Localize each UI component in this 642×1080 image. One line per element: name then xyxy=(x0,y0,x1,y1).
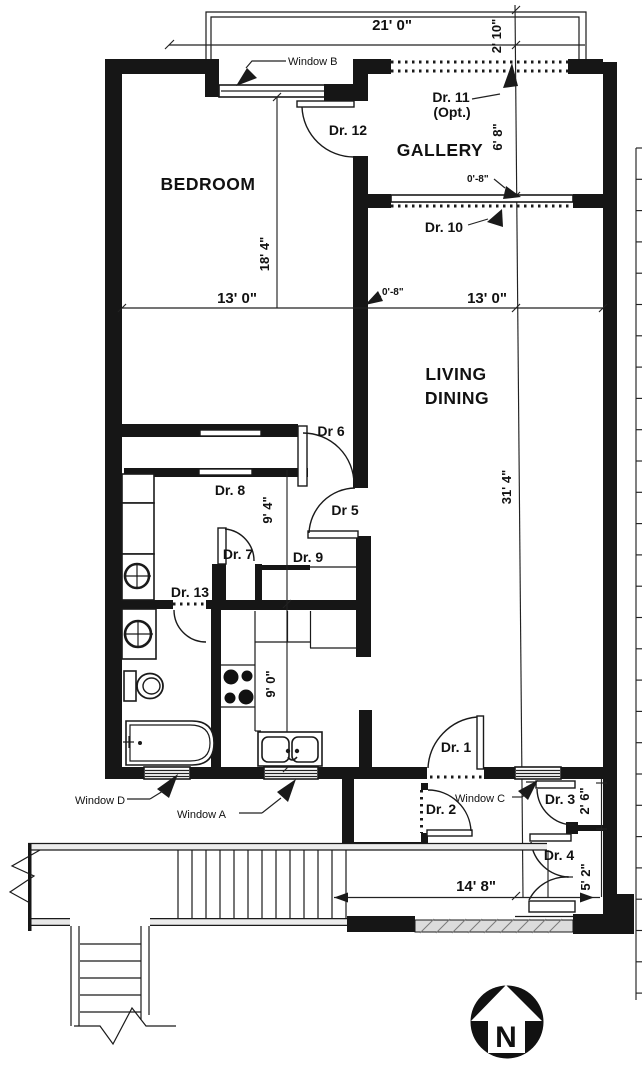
svg-text:Dr. 11: Dr. 11 xyxy=(432,89,470,105)
svg-text:Dr 6: Dr 6 xyxy=(317,423,344,439)
svg-text:Dr. 7: Dr. 7 xyxy=(223,546,254,562)
svg-text:Dr 5: Dr 5 xyxy=(331,502,358,518)
svg-text:(Opt.): (Opt.) xyxy=(433,104,470,120)
svg-text:LIVING: LIVING xyxy=(425,364,486,384)
svg-text:2' 10": 2' 10" xyxy=(489,19,504,54)
svg-text:Window B: Window B xyxy=(288,56,338,68)
svg-text:18' 4": 18' 4" xyxy=(257,237,272,272)
svg-text:13' 0": 13' 0" xyxy=(217,290,257,307)
svg-text:9' 0": 9' 0" xyxy=(263,670,278,697)
svg-text:Window C: Window C xyxy=(455,793,505,805)
svg-text:DINING: DINING xyxy=(425,388,489,408)
svg-text:Dr. 12: Dr. 12 xyxy=(329,122,367,138)
svg-text:Dr. 10: Dr. 10 xyxy=(425,219,463,235)
svg-text:31' 4": 31' 4" xyxy=(499,470,514,505)
svg-text:13' 0": 13' 0" xyxy=(467,290,507,307)
svg-text:Dr. 8: Dr. 8 xyxy=(215,482,246,498)
svg-text:2' 6": 2' 6" xyxy=(577,787,592,814)
svg-text:Dr. 9: Dr. 9 xyxy=(293,549,324,565)
svg-text:14' 8": 14' 8" xyxy=(456,878,496,895)
svg-text:5' 2": 5' 2" xyxy=(578,863,593,890)
svg-text:BEDROOM: BEDROOM xyxy=(161,174,256,194)
svg-text:Dr. 4: Dr. 4 xyxy=(544,847,575,863)
svg-text:Dr. 13: Dr. 13 xyxy=(171,584,209,600)
svg-text:Window A: Window A xyxy=(177,809,227,821)
svg-text:0'-8": 0'-8" xyxy=(467,174,489,185)
svg-text:Window D: Window D xyxy=(75,795,125,807)
svg-text:0'-8": 0'-8" xyxy=(382,287,404,298)
svg-text:Dr. 3: Dr. 3 xyxy=(545,791,576,807)
svg-text:21' 0": 21' 0" xyxy=(372,17,412,34)
svg-text:N: N xyxy=(495,1021,517,1054)
svg-text:Dr. 2: Dr. 2 xyxy=(426,801,457,817)
svg-text:GALLERY: GALLERY xyxy=(397,140,483,160)
svg-text:Dr. 1: Dr. 1 xyxy=(441,739,472,755)
svg-text:9' 4": 9' 4" xyxy=(260,496,275,523)
svg-text:6' 8": 6' 8" xyxy=(490,123,505,150)
